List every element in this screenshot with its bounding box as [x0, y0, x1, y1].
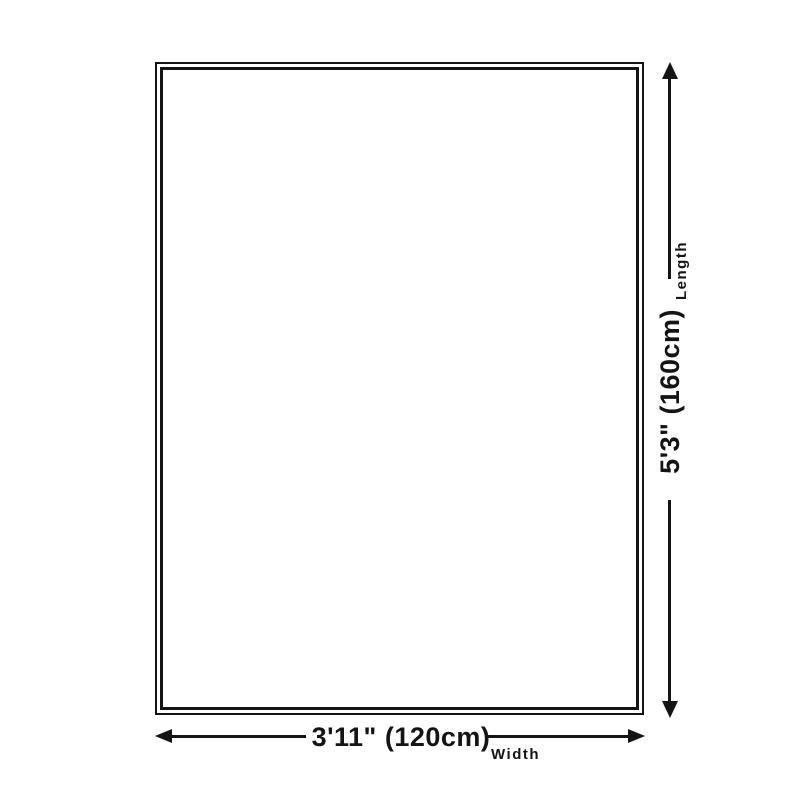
width-arrow-left-line	[169, 735, 306, 738]
rug-outline	[155, 62, 644, 715]
arrow-right-icon	[628, 729, 645, 743]
arrow-down-icon	[662, 701, 678, 718]
width-arrow-right-line	[486, 735, 628, 738]
rug-size-diagram: Length 5'3" (160cm) 3'11" (120cm) Width	[0, 0, 800, 800]
rug-inner-border	[160, 67, 639, 710]
length-dimension: Length 5'3" (160cm)	[640, 62, 704, 718]
width-axis-label: Width	[491, 746, 540, 763]
length-arrow-upper-line	[668, 76, 671, 279]
width-value: 3'11" (120cm)	[312, 722, 491, 752]
length-axis-label: Length	[672, 241, 691, 300]
length-value: 5'3" (160cm)	[653, 309, 687, 474]
width-dimension: 3'11" (120cm) Width	[155, 719, 647, 767]
length-arrow-lower-line	[668, 500, 671, 703]
